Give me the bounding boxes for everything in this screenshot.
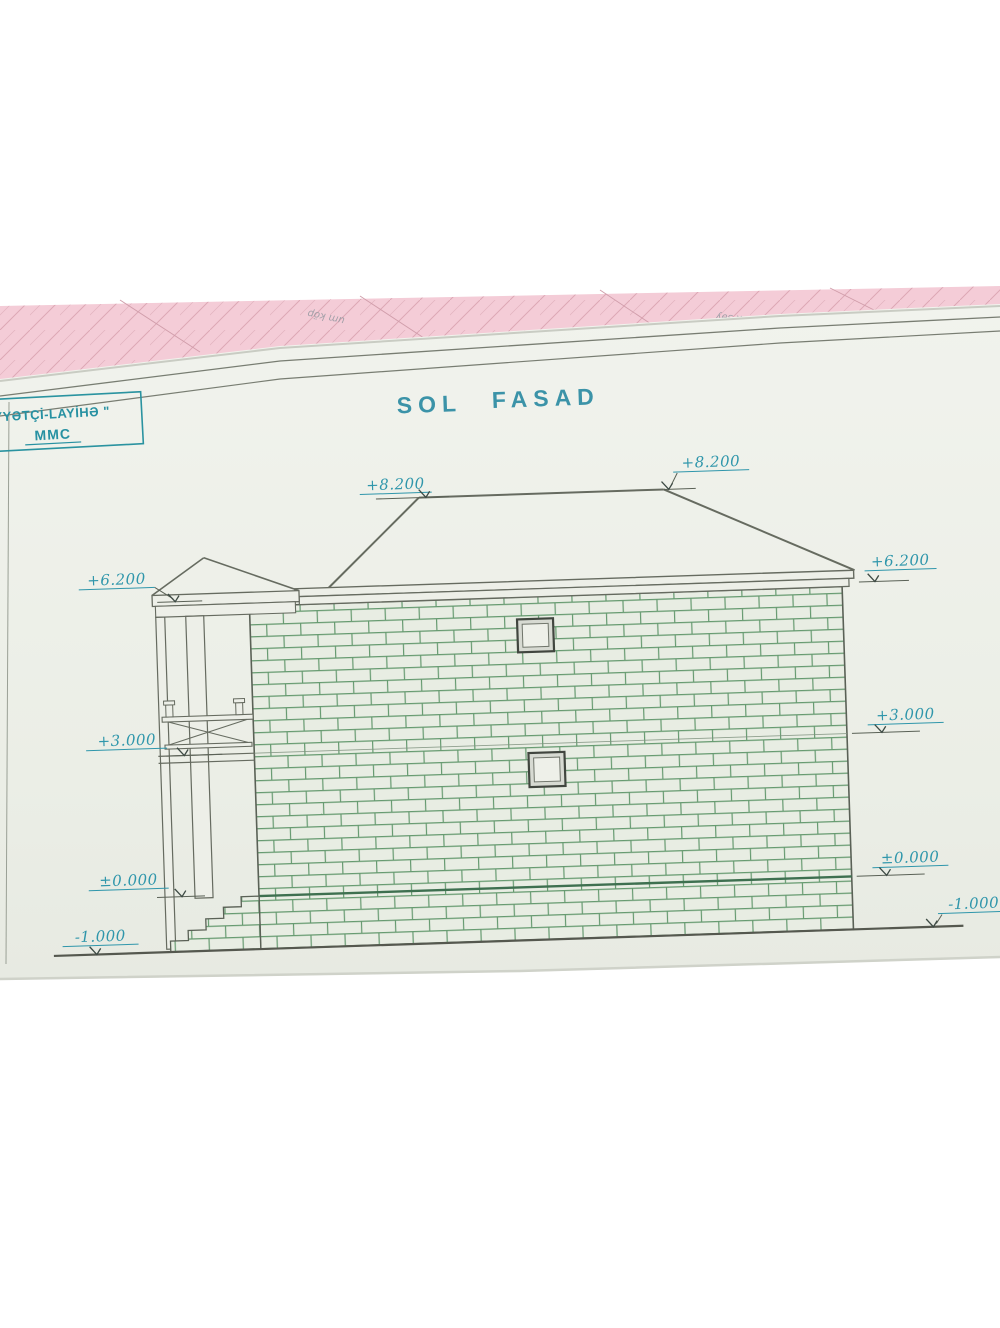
window-upper-glass (522, 623, 549, 647)
stamp-company-type: MMC (34, 425, 71, 443)
marker-label: +8.200 (681, 452, 740, 472)
marker-label: +8.200 (366, 474, 425, 494)
marker-label: ±0.000 (881, 848, 940, 868)
railing-post-right-cap (233, 698, 244, 702)
marker-label: +3.000 (876, 705, 935, 725)
drawing-sheet-svg: um köp alın (ə x səy YYƏTÇİ-LAYİHƏ " MMC… (0, 0, 1000, 1328)
title-word-fasad: FASAD (491, 383, 600, 413)
marker-label: +3.000 (97, 730, 156, 750)
railing-post-left-cap (164, 701, 175, 705)
marker-label: +6.200 (871, 551, 930, 571)
marker-label: ±0.000 (99, 870, 158, 890)
title-word-sol: SOL (396, 390, 462, 418)
railing-post-right (236, 703, 243, 715)
marker-label: +6.200 (87, 570, 146, 590)
marker-label: -1.000 (948, 894, 1000, 914)
window-lower (528, 752, 565, 787)
window-lower-glass (534, 757, 561, 782)
photo-of-architectural-drawing: um köp alın (ə x səy YYƏTÇİ-LAYİHƏ " MMC… (0, 0, 1000, 1328)
marker-label: -1.000 (74, 927, 126, 947)
window-upper (517, 618, 554, 652)
railing-post-left (166, 705, 173, 717)
